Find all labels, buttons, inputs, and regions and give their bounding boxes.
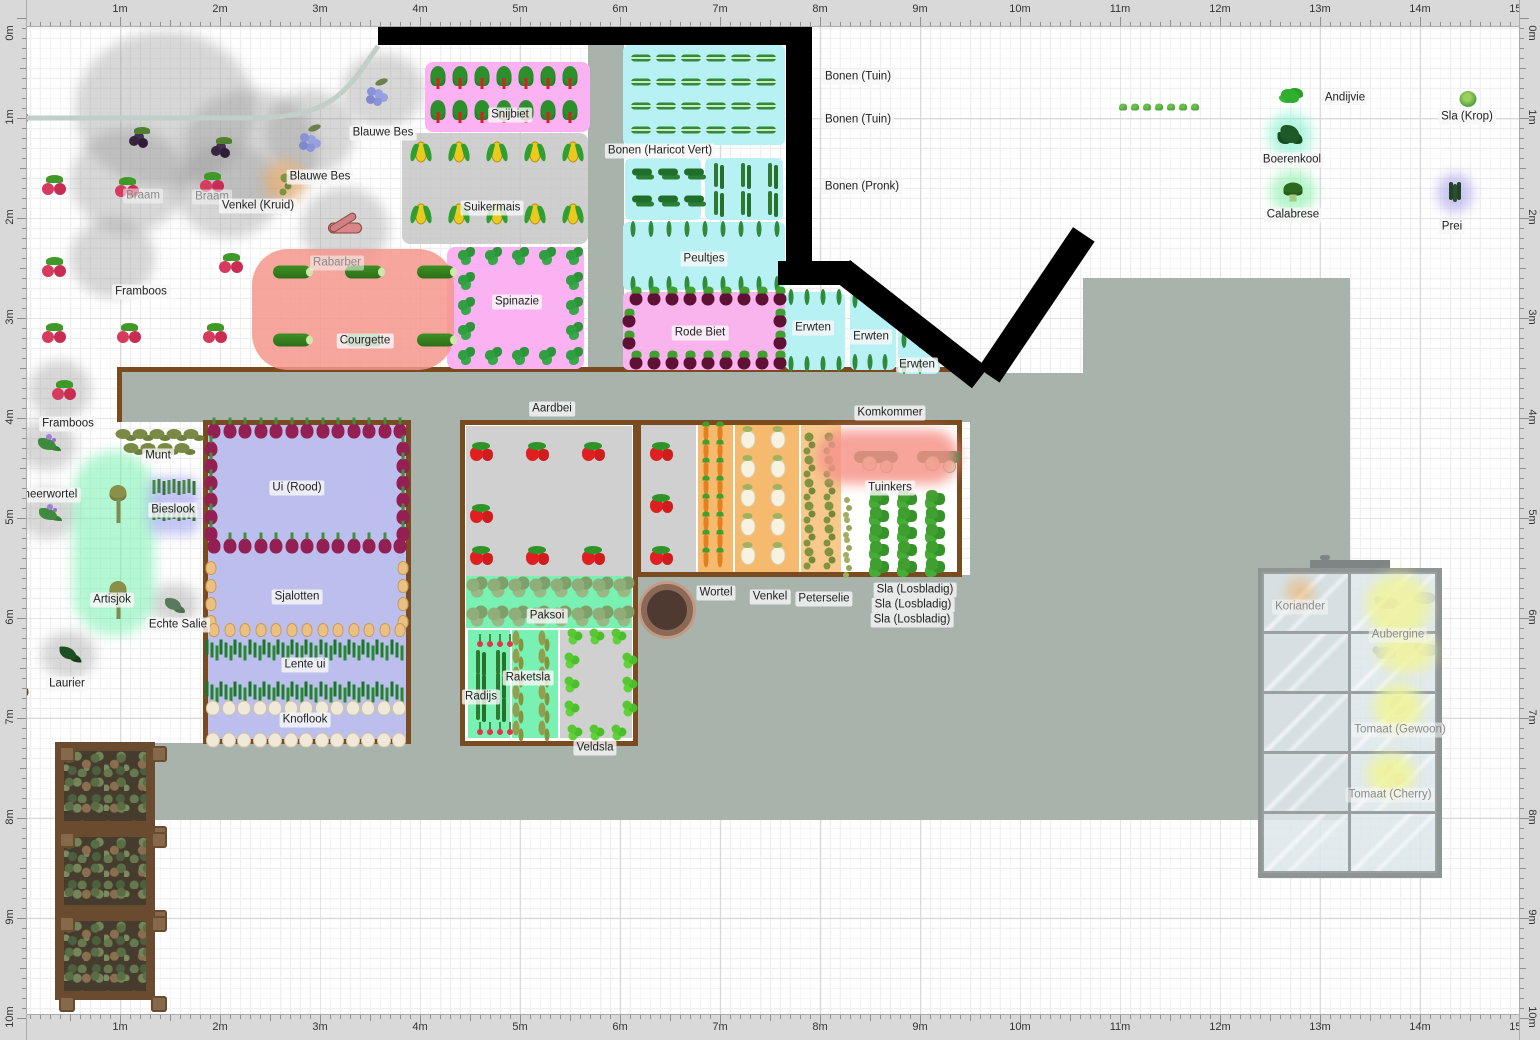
ruler-tick xyxy=(1520,588,1524,589)
ruler-tick xyxy=(1520,188,1524,189)
ruler-tick xyxy=(22,38,26,39)
ruler-tick xyxy=(290,22,291,26)
ruler-tick xyxy=(1520,868,1526,869)
ruler-tick xyxy=(17,518,26,519)
ruler-label: 2m xyxy=(203,3,237,15)
ruler-tick xyxy=(250,1015,251,1019)
ruler-tick xyxy=(880,22,881,26)
ruler-tick xyxy=(310,22,311,26)
ruler-tick xyxy=(1200,1015,1201,1019)
ruler-tick xyxy=(1400,22,1401,26)
wood-corner-post xyxy=(59,832,75,848)
ruler-tick xyxy=(980,1015,981,1019)
ruler-tick xyxy=(1520,388,1524,389)
ruler-tick xyxy=(890,22,891,26)
ruler-tick xyxy=(1520,138,1524,139)
plant-label: Komkommer xyxy=(854,406,925,421)
ruler-tick xyxy=(1210,22,1211,26)
ruler-tick xyxy=(90,1015,91,1019)
ruler-left: 0m1m2m3m4m5m6m7m8m9m10m xyxy=(0,0,27,1040)
ruler-tick xyxy=(22,498,26,499)
ruler-tick xyxy=(360,22,361,26)
ruler-tick xyxy=(980,22,981,26)
ruler-tick xyxy=(1520,508,1524,509)
ruler-tick xyxy=(850,1015,851,1019)
ruler-tick xyxy=(20,768,26,769)
ruler-tick xyxy=(22,258,26,259)
plant-label: Sla (Losbladig) xyxy=(872,598,955,613)
greenhouse-glass-panel xyxy=(1262,752,1350,813)
ruler-label: 0m xyxy=(4,18,16,48)
ruler-tick xyxy=(340,22,341,26)
ruler-tick xyxy=(22,198,26,199)
ruler-tick xyxy=(22,988,26,989)
ruler-label: 6m xyxy=(1526,602,1538,632)
ruler-tick xyxy=(1520,598,1524,599)
plant-label: Erwten xyxy=(896,358,938,373)
ruler-tick xyxy=(1230,22,1231,26)
greenhouse-vent xyxy=(1310,560,1390,568)
plant-label: Framboos xyxy=(112,285,170,300)
ruler-tick xyxy=(22,358,26,359)
ruler-tick xyxy=(60,1015,61,1019)
ruler-tick xyxy=(240,1015,241,1019)
ruler-tick xyxy=(150,1015,151,1019)
bed-suikermais[interactable] xyxy=(402,133,588,244)
zone-veldsla[interactable] xyxy=(560,630,632,738)
bed-bonen-vak-2[interactable] xyxy=(705,158,783,220)
ruler-tick xyxy=(22,128,26,129)
ruler-tick xyxy=(440,22,441,26)
ruler-label: 2m xyxy=(4,202,16,232)
ruler-tick xyxy=(230,22,231,26)
ruler-tick xyxy=(1520,678,1524,679)
bed-bonen-vak-1[interactable] xyxy=(625,158,701,220)
ruler-tick xyxy=(110,1015,111,1019)
ruler-tick xyxy=(1520,88,1524,89)
ruler-tick xyxy=(110,22,111,26)
ruler-tick xyxy=(760,1015,761,1019)
ruler-tick xyxy=(1520,898,1524,899)
ruler-tick xyxy=(1520,308,1524,309)
ruler-tick xyxy=(700,1015,701,1019)
bed-edge-line xyxy=(117,367,122,422)
ruler-label: 2m xyxy=(1526,202,1538,232)
ruler-tick xyxy=(1520,178,1524,179)
ruler-tick xyxy=(900,1015,901,1019)
ruler-label: 10m xyxy=(1003,1021,1037,1033)
ruler-tick xyxy=(130,22,131,26)
ruler-tick xyxy=(1520,468,1526,469)
ruler-tick xyxy=(360,1015,361,1019)
ruler-tick xyxy=(1520,528,1524,529)
ruler-tick xyxy=(1520,858,1524,859)
ruler-tick xyxy=(1360,1015,1361,1019)
ruler-tick xyxy=(1160,22,1161,26)
ruler-tick xyxy=(22,908,26,909)
ruler-label: 9m xyxy=(903,1021,937,1033)
ruler-tick xyxy=(280,1015,281,1019)
ruler-tick xyxy=(670,20,671,26)
ruler-tick xyxy=(1520,668,1526,669)
ruler-tick xyxy=(430,22,431,26)
ruler-tick xyxy=(870,1015,871,1021)
ruler-tick xyxy=(530,1015,531,1019)
ruler-right: 0m1m2m3m4m5m6m7m8m9m10m xyxy=(1519,0,1540,1040)
ruler-tick xyxy=(120,17,121,26)
ruler-tick xyxy=(1510,22,1511,26)
ruler-tick xyxy=(940,22,941,26)
ruler-tick xyxy=(22,848,26,849)
ruler-tick xyxy=(1150,1015,1151,1019)
ruler-tick xyxy=(710,1015,711,1019)
ruler-tick xyxy=(640,1015,641,1019)
ruler-tick xyxy=(1520,808,1524,809)
ruler-tick xyxy=(22,148,26,149)
ruler-label: 8m xyxy=(803,3,837,15)
ruler-tick xyxy=(1520,78,1524,79)
ruler-tick xyxy=(800,1015,801,1019)
tree-canopy xyxy=(29,360,91,420)
ruler-tick xyxy=(1520,558,1524,559)
plant-label: Tuinkers xyxy=(865,481,915,496)
ruler-tick xyxy=(100,22,101,26)
ruler-tick xyxy=(330,22,331,26)
ruler-tick xyxy=(400,1015,401,1019)
ruler-tick xyxy=(22,888,26,889)
plant-label: Sla (Krop) xyxy=(1438,110,1496,125)
ruler-tick xyxy=(1520,958,1524,959)
ruler-tick xyxy=(1500,22,1501,26)
ruler-tick xyxy=(1140,22,1141,26)
ruler-tick xyxy=(380,1015,381,1019)
ruler-tick xyxy=(380,22,381,26)
ruler-tick xyxy=(22,338,26,339)
ruler-tick xyxy=(22,708,26,709)
ruler-label: 4m xyxy=(4,402,16,432)
plant-label: Peultjes xyxy=(681,252,728,267)
ruler-tick xyxy=(50,22,51,26)
ruler-tick xyxy=(17,318,26,319)
ruler-tick xyxy=(22,378,26,379)
plant-label: Erwten xyxy=(792,321,834,336)
ruler-tick xyxy=(22,738,26,739)
plant-label: Andijvie xyxy=(1322,91,1368,106)
wood-corner-post xyxy=(151,996,167,1012)
plant-label: Venkel xyxy=(750,590,791,605)
ruler-tick xyxy=(1520,38,1524,39)
ruler-tick xyxy=(170,20,171,26)
ruler-tick xyxy=(1480,1015,1481,1019)
ruler-tick xyxy=(1480,22,1481,26)
ruler-tick xyxy=(910,1015,911,1019)
ruler-label: 3m xyxy=(303,3,337,15)
ruler-tick xyxy=(1140,1015,1141,1019)
ruler-tick xyxy=(270,20,271,26)
ruler-tick xyxy=(1520,568,1526,569)
ruler-tick xyxy=(1280,1015,1281,1019)
ruler-tick xyxy=(1520,908,1524,909)
ruler-tick xyxy=(1520,768,1526,769)
ruler-label: 5m xyxy=(503,3,537,15)
plant-label: Prei xyxy=(1439,220,1465,235)
ruler-tick xyxy=(1520,538,1524,539)
raised-bed[interactable] xyxy=(55,828,155,914)
garden-planner-canvas: BraamBraamBlauwe BesBlauwe BesVenkel (Kr… xyxy=(0,0,1540,1040)
ruler-tick xyxy=(1470,1015,1471,1021)
ruler-tick xyxy=(1400,1015,1401,1019)
ruler-tick xyxy=(20,468,26,469)
ruler-tick xyxy=(1110,1015,1111,1019)
ruler-tick xyxy=(330,1015,331,1019)
ruler-tick xyxy=(1000,22,1001,26)
ruler-tick xyxy=(1370,1015,1371,1021)
ruler-tick xyxy=(20,168,26,169)
ruler-tick xyxy=(1520,748,1524,749)
ruler-tick xyxy=(22,648,26,649)
ruler-tick xyxy=(22,48,26,49)
ruler-tick xyxy=(22,78,26,79)
ruler-tick xyxy=(30,1015,31,1019)
ruler-tick xyxy=(22,508,26,509)
ruler-tick xyxy=(1510,1015,1511,1019)
ruler-tick xyxy=(1270,20,1271,26)
raised-bed[interactable] xyxy=(55,912,155,1000)
ruler-tick xyxy=(1520,628,1524,629)
ruler-label: 4m xyxy=(1526,402,1538,432)
ruler-tick xyxy=(290,1015,291,1019)
ruler-label: 1m xyxy=(4,102,16,132)
ruler-tick xyxy=(930,22,931,26)
path-bottom[interactable] xyxy=(150,743,1350,820)
plant-pot[interactable] xyxy=(641,584,693,636)
ruler-tick xyxy=(210,1015,211,1019)
ruler-tick xyxy=(1150,22,1151,26)
plant-glow xyxy=(73,451,155,636)
ruler-tick xyxy=(1450,1015,1451,1019)
ruler-tick xyxy=(840,1015,841,1019)
ruler-tick xyxy=(1430,22,1431,26)
ruler-tick xyxy=(1520,98,1524,99)
ruler-tick xyxy=(1520,398,1524,399)
ruler-tick xyxy=(1520,968,1526,969)
ruler-tick xyxy=(370,1015,371,1021)
ruler-tick xyxy=(1310,22,1311,26)
ruler-tick xyxy=(1520,998,1524,999)
ruler-tick xyxy=(190,22,191,26)
wood-corner-post xyxy=(151,832,167,848)
ruler-tick xyxy=(1340,1015,1341,1019)
ruler-tick xyxy=(22,938,26,939)
greenhouse-glass-panel xyxy=(1349,812,1437,873)
plant-label: Bieslook xyxy=(148,503,197,518)
ruler-tick xyxy=(1370,20,1371,26)
ruler-tick xyxy=(1040,1015,1041,1019)
ruler-tick xyxy=(1320,17,1321,26)
ruler-tick xyxy=(22,138,26,139)
ruler-tick xyxy=(200,22,201,26)
ruler-tick xyxy=(22,788,26,789)
bed-uien[interactable] xyxy=(203,420,411,744)
ruler-tick xyxy=(210,22,211,26)
zone-aardbei-links[interactable] xyxy=(466,426,632,576)
ruler-tick xyxy=(810,1015,811,1019)
ruler-tick xyxy=(1520,498,1524,499)
ruler-label: 9m xyxy=(903,3,937,15)
ruler-tick xyxy=(22,748,26,749)
plant-label: Artisjok xyxy=(90,593,134,608)
plant-label: Venkel (Kruid) xyxy=(219,199,297,214)
ruler-tick xyxy=(1070,20,1071,26)
ruler-top: 0m1m2m3m4m5m6m7m8m9m10m11m12m13m14m15m xyxy=(0,0,1540,27)
ruler-label: 7m xyxy=(1526,702,1538,732)
ruler-tick xyxy=(17,618,26,619)
ruler-tick xyxy=(1520,248,1524,249)
ruler-tick xyxy=(22,698,26,699)
ruler-tick xyxy=(450,1015,451,1019)
wall-vertical[interactable] xyxy=(786,18,812,268)
plant-glow xyxy=(1437,173,1473,213)
ruler-tick xyxy=(1120,17,1121,26)
ruler-tick xyxy=(590,22,591,26)
ruler-tick xyxy=(1440,22,1441,26)
ruler-tick xyxy=(220,17,221,26)
path-vertical-top[interactable] xyxy=(588,45,624,372)
ruler-tick xyxy=(1520,408,1524,409)
ruler-tick xyxy=(470,20,471,26)
ruler-tick xyxy=(450,22,451,26)
plant-label: Tomaat (Gewoon) xyxy=(1351,723,1448,738)
ruler-tick xyxy=(1520,278,1524,279)
greenhouse-vent-knob xyxy=(1320,555,1330,560)
ruler-tick xyxy=(1520,788,1524,789)
ruler-tick xyxy=(22,948,26,949)
ruler-tick xyxy=(1350,22,1351,26)
ruler-tick xyxy=(20,868,26,869)
ruler-tick xyxy=(510,22,511,26)
ruler-tick xyxy=(860,22,861,26)
ruler-label: 13m xyxy=(1303,1021,1337,1033)
ruler-tick xyxy=(22,408,26,409)
plant-label: Veldsla xyxy=(573,741,616,756)
ruler-tick xyxy=(1520,758,1524,759)
ruler-tick xyxy=(1520,428,1524,429)
bed-bonen-haricot[interactable] xyxy=(623,45,785,145)
ruler-tick xyxy=(22,858,26,859)
ruler-tick xyxy=(530,22,531,26)
ruler-tick xyxy=(610,1015,611,1019)
ruler-tick xyxy=(1390,1015,1391,1019)
ruler-label: 9m xyxy=(1526,902,1538,932)
ruler-tick xyxy=(1520,948,1524,949)
ruler-tick xyxy=(70,20,71,26)
ruler-tick xyxy=(1260,1015,1261,1019)
ruler-tick xyxy=(22,828,26,829)
ruler-tick xyxy=(390,22,391,26)
plant-label: Rabarber xyxy=(310,256,364,271)
tree-canopy xyxy=(41,631,96,679)
ruler-tick xyxy=(1410,1015,1411,1019)
zone-wortel[interactable] xyxy=(698,425,733,572)
raised-bed[interactable] xyxy=(55,742,155,830)
ruler-tick xyxy=(22,478,26,479)
ruler-tick xyxy=(22,728,26,729)
ruler-tick xyxy=(960,1015,961,1019)
ruler-tick xyxy=(1000,1015,1001,1019)
ruler-tick xyxy=(580,22,581,26)
ruler-tick xyxy=(1040,22,1041,26)
ruler-tick xyxy=(1270,1015,1271,1021)
ruler-tick xyxy=(1080,1015,1081,1019)
ruler-tick xyxy=(22,348,26,349)
ruler-tick xyxy=(930,1015,931,1019)
ruler-tick xyxy=(1520,268,1526,269)
ruler-tick xyxy=(1520,198,1524,199)
ruler-tick xyxy=(1520,328,1524,329)
ruler-tick xyxy=(800,22,801,26)
wood-corner-post xyxy=(59,996,75,1012)
ruler-tick xyxy=(1100,22,1101,26)
ruler-tick xyxy=(1130,1015,1131,1019)
plant-label: Raketsla xyxy=(503,671,554,686)
ruler-tick xyxy=(1250,1015,1251,1019)
ruler-tick xyxy=(960,22,961,26)
ruler-tick xyxy=(150,22,151,26)
ruler-tick xyxy=(20,268,26,269)
ruler-tick xyxy=(1520,988,1524,989)
ruler-label: 12m xyxy=(1203,1021,1237,1033)
ruler-tick xyxy=(22,308,26,309)
ruler-label: 10m xyxy=(4,1002,16,1032)
ruler-tick xyxy=(1450,22,1451,26)
ruler-tick xyxy=(410,1015,411,1019)
ruler-label: 12m xyxy=(1203,3,1237,15)
ruler-tick xyxy=(1430,1015,1431,1019)
ruler-tick xyxy=(22,278,26,279)
ruler-tick xyxy=(580,1015,581,1019)
ruler-tick xyxy=(1520,658,1524,659)
zone-venkel[interactable] xyxy=(735,425,799,572)
ruler-label: 10m xyxy=(1526,1002,1538,1032)
ruler-tick xyxy=(1250,22,1251,26)
ruler-tick xyxy=(1240,22,1241,26)
ruler-tick xyxy=(510,1015,511,1019)
ruler-tick xyxy=(1230,1015,1231,1019)
tree-canopy xyxy=(342,53,424,128)
ruler-tick xyxy=(1520,58,1524,59)
ruler-label: 13m xyxy=(1303,3,1337,15)
ruler-label: 2m xyxy=(203,1021,237,1033)
ruler-tick xyxy=(470,1015,471,1021)
ruler-tick xyxy=(1360,22,1361,26)
ruler-tick xyxy=(1020,17,1021,26)
ruler-tick xyxy=(22,558,26,559)
zone-aardbei-rechts[interactable] xyxy=(641,425,696,572)
ruler-tick xyxy=(1520,288,1524,289)
ruler-tick xyxy=(780,1015,781,1019)
ruler-label: 0m xyxy=(1526,18,1538,48)
ruler-tick xyxy=(40,22,41,26)
ruler-tick xyxy=(610,22,611,26)
ruler-label: 11m xyxy=(1103,3,1137,15)
ruler-tick xyxy=(1520,368,1526,369)
ruler-tick xyxy=(1490,1015,1491,1019)
ruler-tick xyxy=(1030,1015,1031,1019)
ruler-tick xyxy=(830,1015,831,1019)
ruler-tick xyxy=(180,22,181,26)
ruler-tick xyxy=(920,17,921,26)
ruler-tick xyxy=(17,818,26,819)
